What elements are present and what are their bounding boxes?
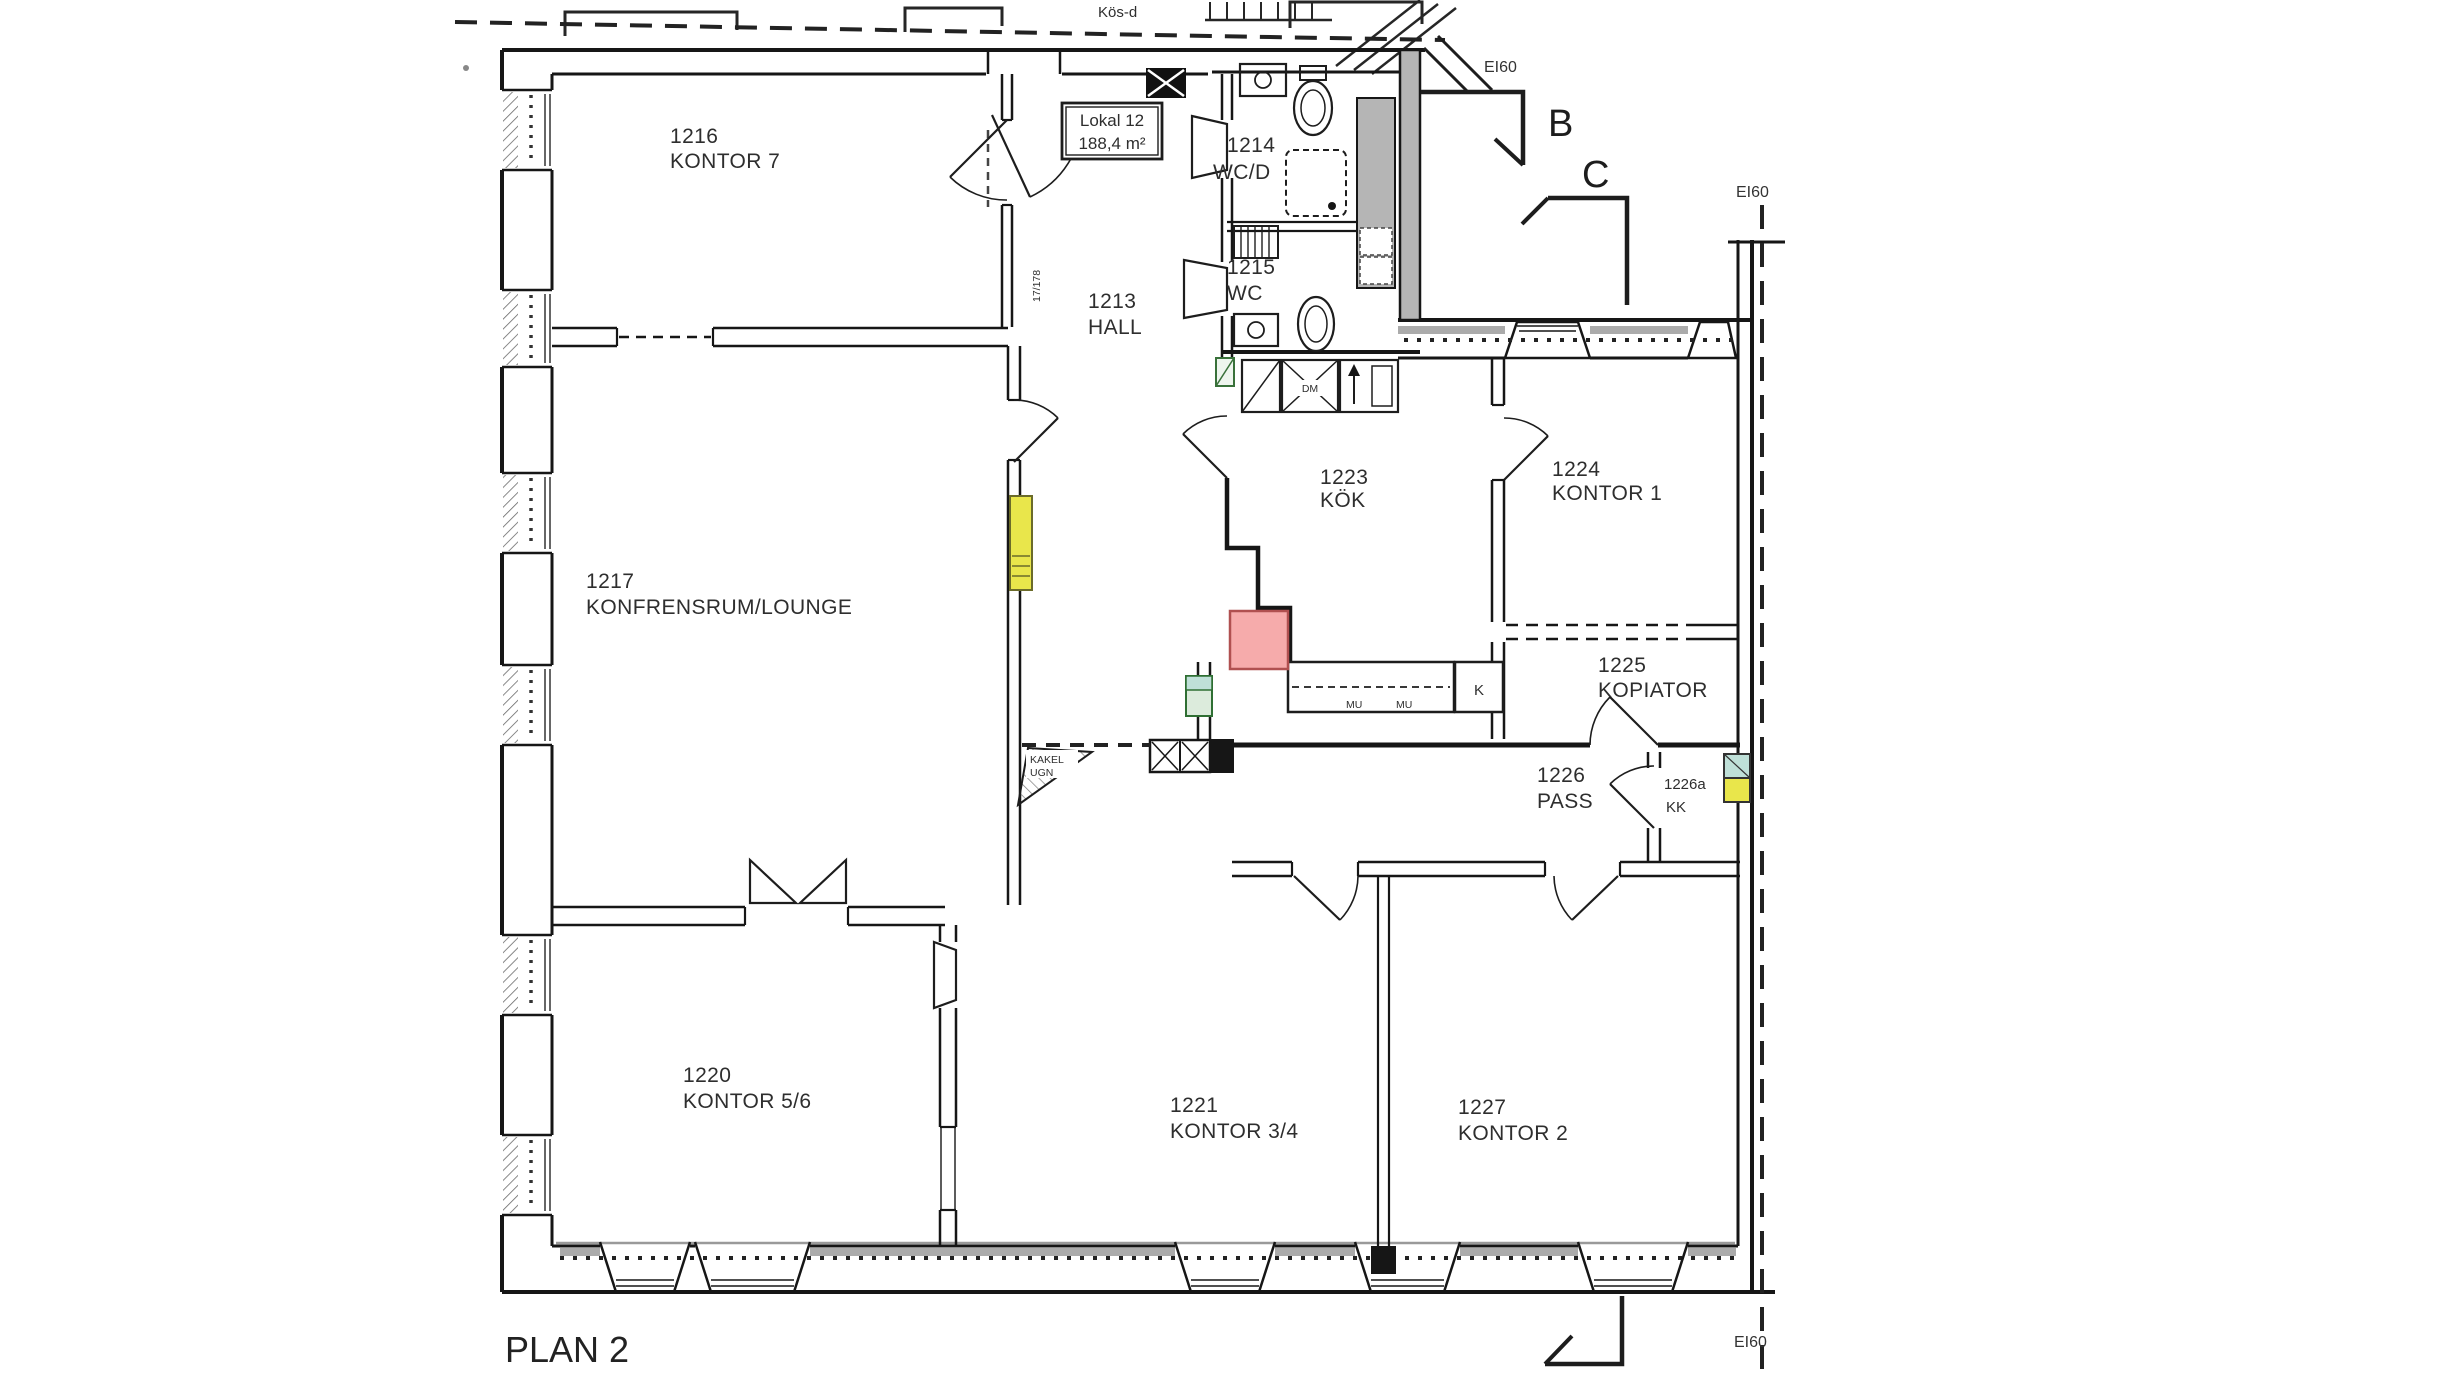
svg-text:1224: 1224 [1552, 458, 1600, 481]
svg-text:KONTOR 5/6: KONTOR 5/6 [683, 1090, 811, 1113]
room-label-1215: 1215 WC [1227, 256, 1275, 305]
stove-icon [1340, 360, 1398, 412]
svg-text:1216: 1216 [670, 125, 718, 148]
sink-icon [1234, 314, 1278, 346]
svg-text:Lokal 12: Lokal 12 [1080, 111, 1144, 130]
svg-text:1226: 1226 [1537, 764, 1585, 787]
stray-dot [463, 65, 469, 71]
counter-label-1: MU [1346, 699, 1362, 711]
room-label-1221: 1221 KONTOR 3/4 [1170, 1094, 1298, 1143]
top-cut-fragments [565, 0, 1456, 74]
room-label-1225: 1225 KOPIATOR [1598, 654, 1708, 702]
highlight-yellow-radiator [1010, 496, 1032, 590]
room-label-1227: 1227 KONTOR 2 [1458, 1096, 1568, 1145]
room-label-1217: 1217 KONFRENSRUM/LOUNGE [586, 570, 852, 619]
svg-text:1227: 1227 [1458, 1096, 1506, 1119]
toilet-icon [1298, 297, 1334, 351]
left-wall-windows [500, 90, 554, 1215]
plan-title: PLAN 2 [505, 1329, 629, 1370]
chimney-box [1150, 740, 1210, 772]
svg-text:188,4 m²: 188,4 m² [1078, 134, 1145, 153]
svg-text:KONTOR 3/4: KONTOR 3/4 [1170, 1120, 1298, 1143]
floor-plan-drawing: 1216 KONTOR 7 1217 KONFRENSRUM/LOUNGE 12… [0, 0, 2440, 1373]
ei60-bottom-label: EI60 [1734, 1334, 1767, 1351]
fire-boundary-dashed-top [455, 22, 1445, 40]
ei60-top-label: EI60 [1484, 59, 1517, 76]
bottom-wall [502, 1242, 1775, 1292]
toilet-icon [1294, 81, 1332, 135]
annotation-texts: PLAN 2 B C EI60 EI60 EI60 K DM MU MU KAK… [505, 4, 1769, 1370]
svg-text:1215: 1215 [1227, 256, 1275, 279]
svg-text:1220: 1220 [683, 1064, 731, 1087]
svg-text:1217: 1217 [586, 570, 634, 593]
svg-text:KONFRENSRUM/LOUNGE: KONFRENSRUM/LOUNGE [586, 596, 852, 619]
section-c-mark [1548, 198, 1627, 305]
fridge-label: K [1474, 682, 1484, 699]
shaft-box-icon [1146, 68, 1186, 98]
stove-label-2: UGN [1030, 767, 1053, 779]
svg-text:HALL: HALL [1088, 316, 1142, 339]
svg-text:KÖK: KÖK [1320, 489, 1366, 512]
kk-sink-unit [1724, 754, 1750, 802]
svg-text:KK: KK [1666, 799, 1686, 816]
floor-plan-page: 1216 KONTOR 7 1217 KONFRENSRUM/LOUNGE 12… [0, 0, 2440, 1373]
stairwell-west-wall [1400, 50, 1420, 320]
wc-shaft [1357, 98, 1395, 288]
svg-text:1213: 1213 [1088, 290, 1136, 313]
svg-text:1214: 1214 [1227, 134, 1275, 157]
local-area-box: Lokal 12 188,4 m² [1062, 103, 1162, 159]
ei60-right-label: EI60 [1736, 184, 1769, 201]
svg-text:KOPIATOR: KOPIATOR [1598, 679, 1708, 702]
svg-text:1225: 1225 [1598, 654, 1646, 677]
shower-icon [1286, 150, 1346, 216]
svg-text:1223: 1223 [1320, 466, 1368, 489]
room-label-1216: 1216 KONTOR 7 [670, 125, 780, 173]
doors [750, 115, 1658, 1008]
counter-label-2: MU [1396, 699, 1412, 711]
room-label-1224: 1224 KONTOR 1 [1552, 458, 1662, 505]
section-b-label: B [1548, 103, 1573, 145]
svg-text:KONTOR 7: KONTOR 7 [670, 150, 780, 173]
room-label-1213: 1213 HALL [1088, 290, 1142, 339]
sink-icon [1240, 64, 1286, 96]
svg-text:WC/D: WC/D [1213, 161, 1271, 184]
kontor1-top-wall [1398, 320, 1752, 358]
section-b-mark [1421, 92, 1523, 165]
room-label-1226: 1226 PASS [1537, 764, 1593, 813]
section-c-label: C [1582, 154, 1609, 196]
room-label-1220: 1220 KONTOR 5/6 [683, 1064, 811, 1113]
svg-text:KONTOR 2: KONTOR 2 [1458, 1122, 1568, 1145]
stair-dim-label: 17/178 [1031, 270, 1043, 302]
svg-text:WC: WC [1227, 282, 1263, 305]
room-label-1226a: 1226a KK [1664, 776, 1706, 816]
highlight-pink-area [1230, 611, 1288, 669]
top-cut-label: Kös-d [1098, 4, 1137, 21]
svg-text:PASS: PASS [1537, 790, 1593, 813]
stove-label-1: KAKEL [1030, 754, 1064, 766]
room-labels: 1216 KONTOR 7 1217 KONFRENSRUM/LOUNGE 12… [586, 125, 1708, 1145]
svg-text:KONTOR 1: KONTOR 1 [1552, 482, 1662, 505]
green-fixture [1186, 676, 1212, 716]
svg-text:1226a: 1226a [1664, 776, 1706, 793]
dishwasher-label: DM [1302, 383, 1318, 395]
svg-text:1221: 1221 [1170, 1094, 1218, 1117]
room-label-1223: 1223 KÖK [1320, 466, 1368, 512]
